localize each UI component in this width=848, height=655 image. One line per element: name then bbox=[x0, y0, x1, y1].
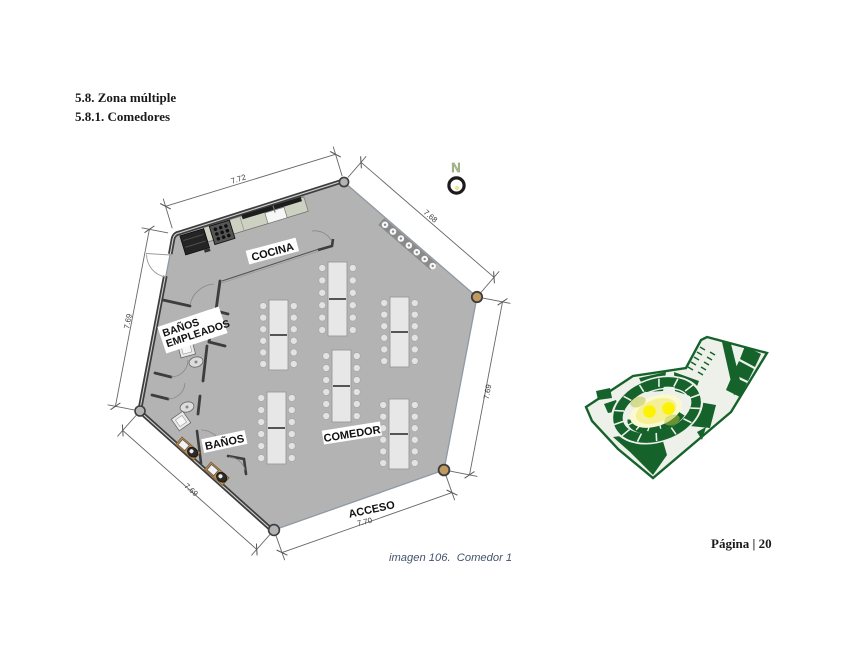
svg-text:7.72: 7.72 bbox=[230, 173, 247, 186]
svg-text:7.69: 7.69 bbox=[122, 313, 134, 330]
svg-text:N: N bbox=[451, 160, 460, 175]
svg-text:7.69: 7.69 bbox=[182, 481, 199, 498]
svg-text:7.68: 7.68 bbox=[422, 208, 439, 225]
svg-text:7.69: 7.69 bbox=[482, 384, 494, 401]
